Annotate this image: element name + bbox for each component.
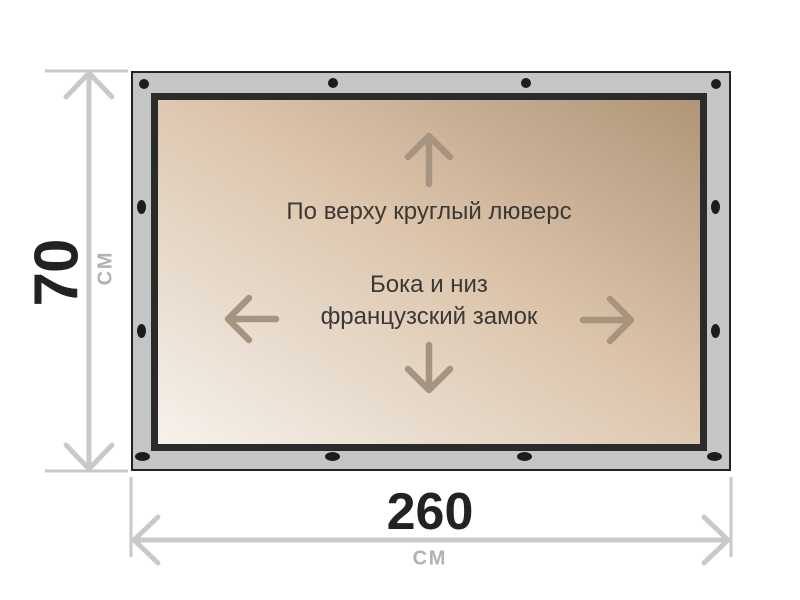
banner-frame: По верху круглый люверс Бока и низ франц… xyxy=(131,71,731,471)
grommet-bottom-1 xyxy=(135,452,150,461)
grommet-top-1 xyxy=(139,79,149,89)
grommet-left-2 xyxy=(137,324,146,338)
width-unit: СМ xyxy=(413,548,448,571)
grommet-right-2 xyxy=(711,324,720,338)
grommet-bottom-2 xyxy=(325,452,340,461)
width-value: 260 xyxy=(387,482,474,542)
arrow-up-icon xyxy=(408,136,450,184)
height-value: 70 xyxy=(22,240,93,307)
grommet-bottom-4 xyxy=(707,452,722,461)
height-unit: СМ xyxy=(95,251,118,286)
grommet-top-3 xyxy=(521,78,531,88)
side-bottom-fastening-line2: французский замок xyxy=(158,301,700,333)
side-bottom-fastening-label: Бока и низ французский замок xyxy=(158,269,700,333)
side-bottom-fastening-line1: Бока и низ xyxy=(158,269,700,301)
grommet-right-1 xyxy=(711,200,720,214)
banner-panel: По верху круглый люверс Бока и низ франц… xyxy=(151,93,707,451)
banner-spec-diagram: По верху круглый люверс Бока и низ франц… xyxy=(0,0,800,600)
grommet-left-1 xyxy=(137,200,146,214)
direction-arrow-group xyxy=(228,136,631,390)
grommet-bottom-3 xyxy=(517,452,532,461)
arrow-down-icon xyxy=(408,345,450,390)
top-fastening-label: По верху круглый люверс xyxy=(158,196,700,228)
grommet-top-2 xyxy=(328,78,338,88)
grommet-top-4 xyxy=(711,79,721,89)
